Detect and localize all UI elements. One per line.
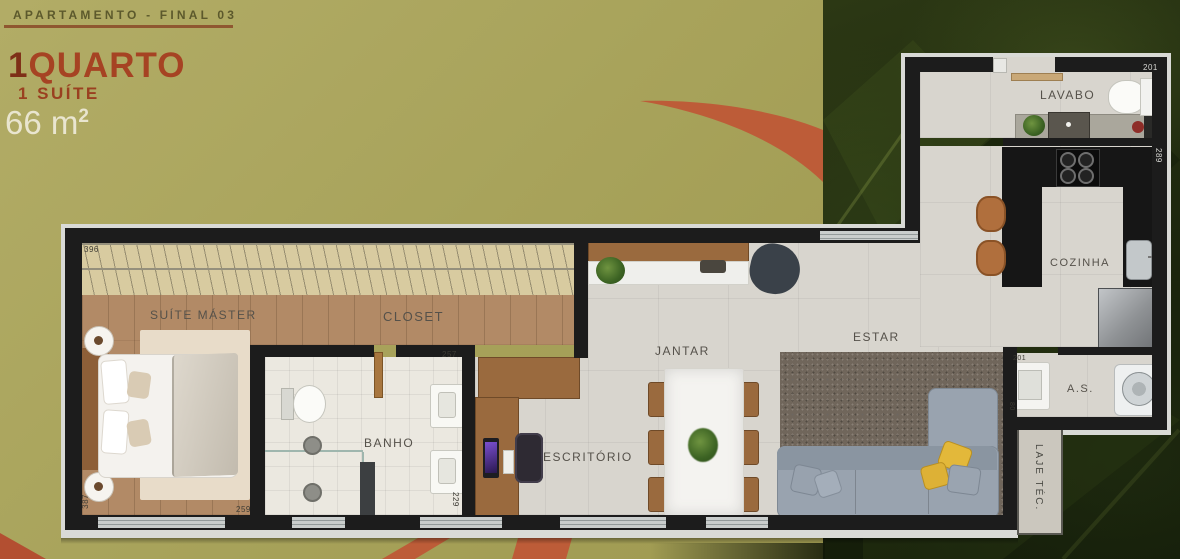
cooktop-burner bbox=[1078, 152, 1094, 168]
wall-segment bbox=[65, 228, 920, 243]
dim-as-height: 80 bbox=[1008, 402, 1015, 411]
room-label-escritorio: ESCRITÓRIO bbox=[543, 450, 633, 464]
room-label-lavabo: LAVABO bbox=[1040, 88, 1095, 102]
window bbox=[292, 517, 345, 528]
shower-drain bbox=[303, 436, 322, 455]
laundry-tub-basin bbox=[1018, 370, 1042, 400]
bed-pillow bbox=[100, 359, 130, 405]
dim-banho-height: 229 bbox=[451, 492, 459, 507]
plan-outline-sill bbox=[61, 530, 1018, 538]
entry-door-leaf bbox=[1011, 73, 1063, 81]
kitchen-sink bbox=[1126, 240, 1152, 280]
dim-suite-height: 387 bbox=[82, 494, 90, 509]
window bbox=[820, 231, 918, 240]
bathroom-sink-basin bbox=[438, 458, 456, 484]
keyboard bbox=[503, 450, 514, 474]
window bbox=[420, 517, 502, 528]
entry-door-recess bbox=[993, 58, 1007, 73]
window bbox=[98, 517, 225, 528]
page: APARTAMENTO - FINAL 03 1QUARTO 1 SUÍTE 6… bbox=[0, 0, 1180, 559]
window bbox=[560, 517, 666, 528]
dim-as-width: 201 bbox=[1013, 355, 1026, 362]
letter-curve bbox=[640, 101, 823, 182]
wall-segment bbox=[250, 345, 265, 530]
lavabo-end-cabinet bbox=[1144, 114, 1152, 138]
dim-cozinha-height: 289 bbox=[1154, 148, 1162, 163]
wall-segment bbox=[905, 57, 920, 243]
lavabo-faucet bbox=[1066, 122, 1071, 127]
bed-blanket bbox=[172, 353, 238, 477]
dim-suite-width: 259 bbox=[236, 506, 251, 514]
unit-word: QUARTO bbox=[28, 46, 185, 85]
room-label-estar: ESTAR bbox=[853, 330, 900, 344]
banho-door-leaf bbox=[374, 352, 383, 398]
room-label-banho: BANHO bbox=[364, 436, 414, 450]
shower-drain bbox=[303, 483, 322, 502]
bed-pillow bbox=[126, 371, 151, 400]
window bbox=[706, 517, 768, 528]
nightstand-detail bbox=[94, 482, 103, 491]
office-chair bbox=[515, 433, 543, 483]
cooktop-burner bbox=[1060, 152, 1076, 168]
unit-count: 1 bbox=[8, 46, 28, 85]
dim-lavabo-width: 201 bbox=[1143, 64, 1158, 72]
toilet-bowl bbox=[293, 385, 326, 423]
bar-stool bbox=[976, 240, 1006, 276]
olive-to-leaf-fade bbox=[650, 543, 825, 559]
room-label-jantar: JANTAR bbox=[655, 344, 710, 358]
wall-segment bbox=[1152, 57, 1167, 430]
plan-outline bbox=[1167, 53, 1171, 435]
dim-banho-width: 257 bbox=[442, 351, 457, 359]
room-label-area-servico: A.S. bbox=[1067, 383, 1094, 395]
wall-segment bbox=[462, 345, 475, 530]
cooktop-burner bbox=[1078, 168, 1094, 184]
lavabo-decor-red bbox=[1132, 121, 1144, 133]
area-label: 66 m2 bbox=[5, 106, 89, 139]
office-cabinet bbox=[478, 357, 580, 399]
wall-segment bbox=[574, 228, 588, 358]
plan-shadow bbox=[61, 538, 1018, 544]
bathroom-sink-basin bbox=[438, 392, 456, 418]
room-label-suite: SUÍTE MÁSTER bbox=[150, 308, 257, 322]
title-rule bbox=[4, 25, 233, 28]
refrigerator bbox=[1098, 288, 1158, 348]
area-value: 66 m bbox=[5, 104, 78, 141]
sofa-pillow-gray bbox=[946, 464, 982, 496]
bed-pillow bbox=[100, 409, 129, 455]
bar-stool bbox=[976, 196, 1006, 232]
cooktop-burner bbox=[1060, 168, 1076, 184]
bed-pillow bbox=[126, 418, 152, 447]
room-label-cozinha: COZINHA bbox=[1050, 257, 1110, 269]
shower-door bbox=[360, 462, 375, 515]
area-exponent: 2 bbox=[78, 106, 89, 127]
sofa-seam bbox=[855, 470, 856, 514]
wall-segment bbox=[250, 345, 374, 357]
kitchen-counter bbox=[1002, 147, 1042, 287]
room-label-closet: CLOSET bbox=[383, 309, 444, 324]
laptop-screen bbox=[485, 442, 497, 473]
wall-segment bbox=[1003, 417, 1167, 430]
apartment-subtitle: APARTAMENTO - FINAL 03 bbox=[13, 8, 237, 22]
pergola-hatch-band bbox=[82, 243, 574, 299]
lavabo-plant bbox=[1023, 115, 1045, 136]
letter-corner-triangle bbox=[0, 533, 46, 559]
sideboard-decor bbox=[700, 260, 726, 273]
washer-drum bbox=[1122, 372, 1156, 406]
sideboard-plant bbox=[596, 257, 625, 284]
wall-segment bbox=[1058, 347, 1167, 355]
page-title: 1QUARTO bbox=[8, 48, 186, 83]
sofa-chaise bbox=[928, 388, 998, 452]
dim-pergola: 396 bbox=[84, 246, 99, 254]
nightstand-detail bbox=[94, 336, 103, 345]
room-label-laje-tecnica: LAJE TÉC. bbox=[1033, 444, 1044, 511]
table-centerpiece bbox=[688, 428, 718, 462]
wall-segment bbox=[65, 228, 82, 530]
wall-segment bbox=[1003, 138, 1167, 146]
suite-subtitle: 1 SUÍTE bbox=[18, 84, 100, 104]
